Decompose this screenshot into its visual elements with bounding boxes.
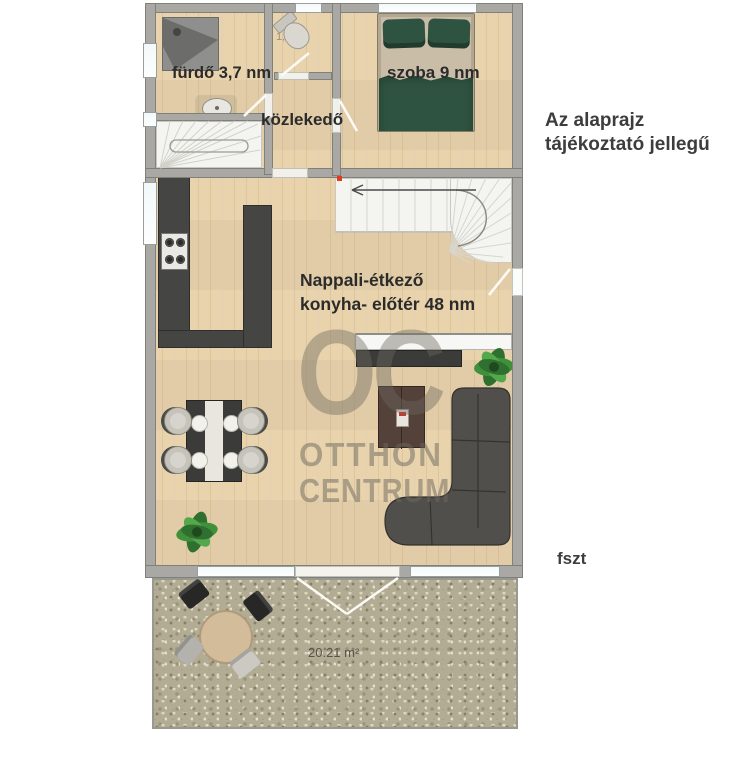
window-wc: [295, 3, 322, 13]
window-bedroom: [378, 3, 477, 13]
stove-burner: [176, 255, 185, 264]
hallway-label: közlekedő: [261, 110, 343, 130]
window-living-right: [410, 566, 500, 577]
disclaimer-line2: tájékoztató jellegű: [545, 134, 710, 156]
dining-chair: [164, 446, 192, 474]
dining-table: [186, 400, 242, 482]
upper-stairs: [156, 121, 262, 168]
stove-burner: [165, 255, 174, 264]
window-kitchen: [143, 182, 157, 245]
pillow: [428, 18, 471, 48]
window-living-left: [197, 566, 295, 577]
floor-level-label: fszt: [557, 549, 586, 569]
dining-chair: [237, 407, 265, 435]
disclaimer-line1: Az alaprajz: [545, 110, 644, 132]
shower-icon: [162, 17, 219, 71]
stove-burner: [176, 238, 185, 247]
kitchen-counter-island: [243, 205, 272, 348]
living-room-label-line2: konyha- előtér 48 nm: [300, 294, 475, 315]
living-room-label-line1: Nappali-étkező: [300, 270, 424, 291]
bathroom-label: fürdő 3,7 nm: [172, 64, 271, 83]
dining-chair: [164, 407, 192, 435]
window-stairs: [143, 112, 157, 127]
pillow: [383, 18, 426, 48]
shower-head: [173, 28, 181, 36]
wall-outer-left: [145, 3, 156, 578]
dining-chair: [237, 446, 265, 474]
window-bathroom: [143, 43, 157, 78]
shower-tray-shade: [163, 18, 218, 70]
stove-burner: [165, 238, 174, 247]
plate: [191, 452, 208, 469]
table-runner: [205, 401, 223, 481]
wall-bathroom-bottom: [145, 113, 274, 121]
hallway-living-opening: [272, 168, 308, 178]
watermark-monogram: OC: [297, 302, 441, 442]
stove-icon: [161, 233, 188, 270]
bedroom-label: szoba 9 nm: [387, 63, 480, 83]
floor-plan-page: OC OTTHON CENTRUM fürdő 3,7 nm 1,2 m² kö…: [0, 0, 731, 770]
watermark-name-line2: CENTRUM: [299, 472, 450, 510]
terrace-door-opening: [295, 566, 400, 577]
stairs-marker-dot: [337, 176, 342, 181]
watermark-name-line1: OTTHON: [299, 436, 443, 474]
main-stairs-flight: [335, 178, 453, 232]
wc-door-opening: [278, 72, 309, 80]
entry-door-opening: [512, 268, 523, 296]
sink-drain: [215, 106, 219, 110]
wall-bedroom-left: [332, 3, 341, 176]
wall-bathroom-right: [264, 3, 273, 175]
plate: [191, 415, 208, 432]
terrace-area-label: 20.21 m²: [308, 645, 359, 660]
